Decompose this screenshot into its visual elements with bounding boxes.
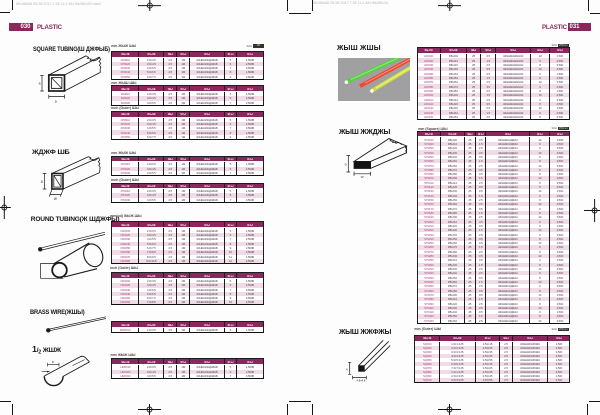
svg-text:W: W <box>54 197 57 201</box>
svg-text:D: D <box>345 163 348 167</box>
svg-text:D: D <box>52 360 54 364</box>
svg-text:4.8×4.8: 4.8×4.8 <box>357 379 366 383</box>
svg-text:W: W <box>361 175 364 179</box>
svg-text:a: a <box>39 82 41 86</box>
svg-text:A: A <box>346 368 348 372</box>
svg-text:D: D <box>41 180 44 184</box>
svg-text:a: a <box>55 100 57 104</box>
